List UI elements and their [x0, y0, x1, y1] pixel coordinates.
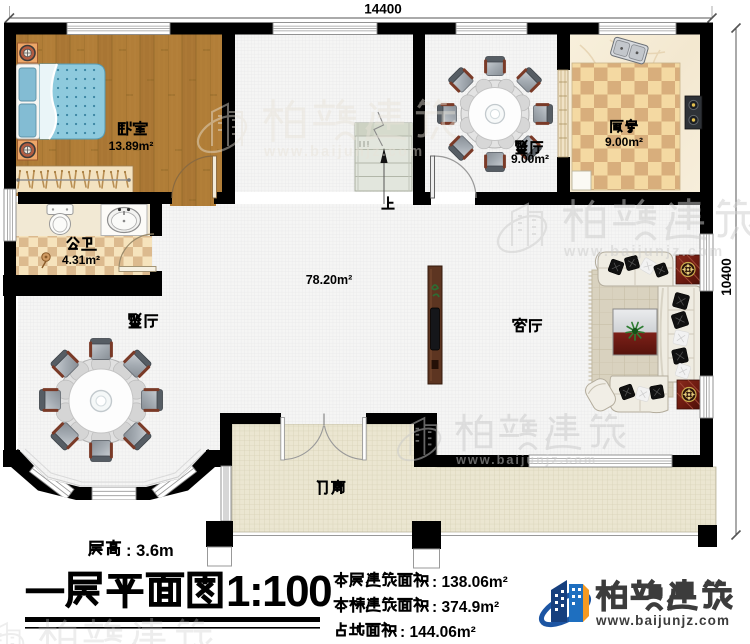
svg-text:: 138.06m²: : 138.06m² — [432, 574, 508, 591]
svg-text:10400: 10400 — [719, 258, 734, 296]
svg-text:14400: 14400 — [364, 2, 402, 17]
svg-text:www.baijunjz.com: www.baijunjz.com — [263, 144, 424, 160]
svg-text:78.20m²: 78.20m² — [306, 273, 353, 287]
svg-text:13.89m²: 13.89m² — [109, 139, 154, 153]
svg-text:1:100: 1:100 — [226, 567, 331, 616]
svg-text:: 3.6m: : 3.6m — [126, 542, 174, 560]
svg-text:4.31m²: 4.31m² — [62, 253, 100, 267]
svg-text:www.baijunjz.com: www.baijunjz.com — [563, 244, 724, 260]
svg-text:: 144.06m²: : 144.06m² — [400, 624, 476, 641]
svg-text:www.baijunjz.com: www.baijunjz.com — [595, 613, 730, 628]
svg-text:9.00m²: 9.00m² — [511, 152, 549, 166]
svg-text:www.baijunjz.com: www.baijunjz.com — [455, 452, 597, 467]
svg-text:: 374.9m²: : 374.9m² — [432, 599, 499, 616]
svg-text:9.00m²: 9.00m² — [605, 135, 643, 149]
